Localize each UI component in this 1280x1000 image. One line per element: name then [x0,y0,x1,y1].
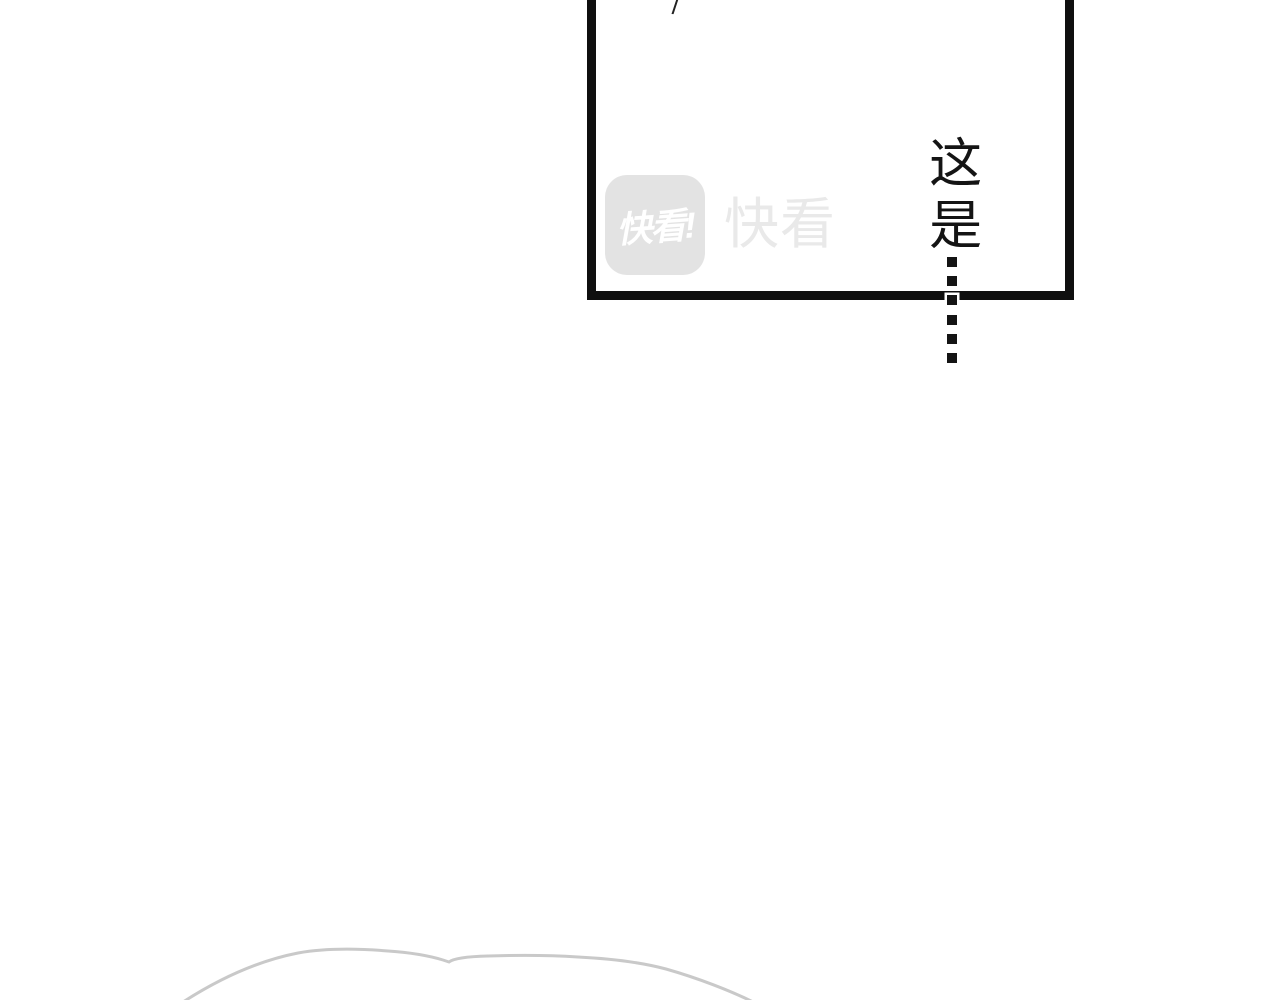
dotted-line-dash [947,295,957,305]
dotted-line-dash [947,353,957,363]
kuaikan-logo-badge: 快看! [605,175,705,275]
slash-mark: / [671,0,680,18]
curve-path [180,949,757,1000]
dotted-line-dash [947,257,957,267]
dotted-line-dash [947,276,957,286]
dotted-line-dash [947,315,957,325]
speech-vertical-text: 这是 [923,135,979,259]
kuaikan-logo-text: 快看! [614,196,695,253]
dotted-line-dash [947,334,957,344]
kuaikan-brand-text: 快看 [724,197,836,252]
comic-page: / 快看! 快看 这是 [0,0,1280,1000]
